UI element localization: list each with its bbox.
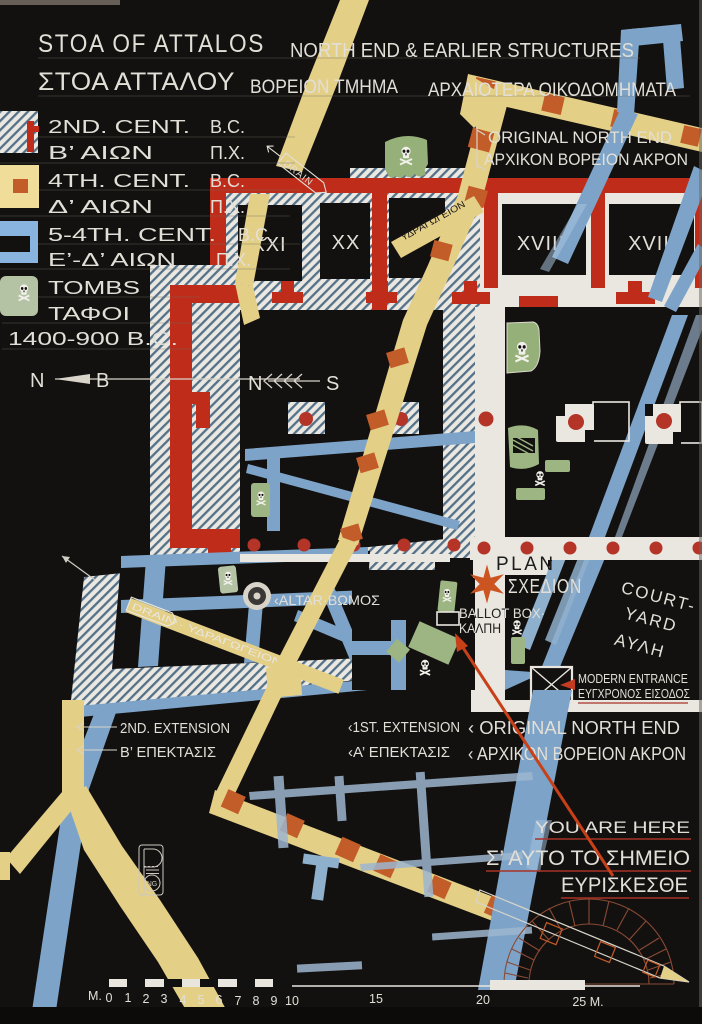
svg-text:ΒΟΡΕΙΟΝ ΤΜΗΜΑ: ΒΟΡΕΙΟΝ ΤΜΗΜΑ xyxy=(250,77,398,98)
svg-text:4TH. CENT.: 4TH. CENT. xyxy=(48,171,190,191)
svg-text:6: 6 xyxy=(216,993,223,1007)
svg-text:Π.Χ.: Π.Χ. xyxy=(210,143,245,163)
svg-text:M.: M. xyxy=(88,989,102,1003)
svg-text:10: 10 xyxy=(285,994,299,1008)
svg-text:25 M.: 25 M. xyxy=(572,995,603,1009)
svg-text:ΕΥΡΙΣΚΕΣΘΕ: ΕΥΡΙΣΚΕΣΘΕ xyxy=(561,874,688,897)
svg-text:ΤΑΦΟΙ: ΤΑΦΟΙ xyxy=(48,304,130,324)
svg-text:4: 4 xyxy=(180,993,187,1007)
svg-text:STOA OF ATTALOS: STOA OF ATTALOS xyxy=(38,30,265,58)
svg-text:XVII: XVII xyxy=(628,233,670,255)
svg-text:MODERN ENTRANCE: MODERN ENTRANCE xyxy=(578,672,688,686)
svg-text:PLAN: PLAN xyxy=(496,554,556,575)
svg-text:2ND. EXTENSION: 2ND. EXTENSION xyxy=(120,720,230,737)
svg-text:8: 8 xyxy=(253,994,260,1008)
svg-text:20: 20 xyxy=(476,993,490,1007)
svg-text:Δ’ ΑΙΩΝ: Δ’ ΑΙΩΝ xyxy=(48,197,153,217)
svg-text:ΑΡΧΑΙΟΤΕΡΑ ΟΙΚΟΔΟΜΗΜΑΤΑ: ΑΡΧΑΙΟΤΕΡΑ ΟΙΚΟΔΟΜΗΜΑΤΑ xyxy=(428,80,676,101)
svg-text:2: 2 xyxy=(143,992,150,1006)
svg-text:ΕΥΓΧΡΟΝΟΣ ΕΙΣΟΔΟΣ: ΕΥΓΧΡΟΝΟΣ ΕΙΣΟΔΟΣ xyxy=(578,687,690,701)
svg-text:S: S xyxy=(326,373,339,395)
svg-text:‹ ΑΡΧΙΚΟΝ ΒΟΡΕΙΟΝ ΑΚΡΟΝ: ‹ ΑΡΧΙΚΟΝ ΒΟΡΕΙΟΝ ΑΚΡΟΝ xyxy=(468,744,686,764)
svg-text:1: 1 xyxy=(125,991,132,1005)
svg-text:5-4TH. CENT.: 5-4TH. CENT. xyxy=(48,225,216,245)
svg-text:‹Α’ ΕΠΕΚΤΑΣΙΣ: ‹Α’ ΕΠΕΚΤΑΣΙΣ xyxy=(348,744,450,761)
svg-text:Π.Χ.: Π.Χ. xyxy=(216,250,251,270)
svg-text:YOU ARE HERE: YOU ARE HERE xyxy=(535,818,690,837)
svg-text:TOMBS: TOMBS xyxy=(48,278,140,298)
svg-text:NORTH END & EARLIER STRUCTURES: NORTH END & EARLIER STRUCTURES xyxy=(290,40,634,62)
svg-text:ORIGINAL NORTH END: ORIGINAL NORTH END xyxy=(488,129,672,147)
svg-text:‹ALTAR·ΒΩΜΟΣ: ‹ALTAR·ΒΩΜΟΣ xyxy=(274,592,380,608)
svg-text:B.C.: B.C. xyxy=(210,171,245,191)
svg-text:9: 9 xyxy=(271,994,278,1008)
svg-text:3: 3 xyxy=(161,992,168,1006)
svg-text:7: 7 xyxy=(235,994,242,1008)
svg-text:Β’ ΕΠΕΚΤΑΣΙΣ: Β’ ΕΠΕΚΤΑΣΙΣ xyxy=(120,744,216,761)
svg-text:ΣΧΕΔΙΟΝ: ΣΧΕΔΙΟΝ xyxy=(508,576,582,598)
svg-text:B.C.: B.C. xyxy=(238,225,273,245)
svg-text:ΣΤΟΑ ΑΤΤΑΛΟΥ: ΣΤΟΑ ΑΤΤΑΛΟΥ xyxy=(38,68,235,96)
svg-text:B.C.: B.C. xyxy=(210,117,245,137)
svg-text:2ND. CENT.: 2ND. CENT. xyxy=(48,117,190,137)
svg-text:N: N xyxy=(248,373,262,395)
svg-text:1400-900 B.C.: 1400-900 B.C. xyxy=(8,329,178,349)
svg-text:N: N xyxy=(30,370,44,392)
svg-text:Β’ ΑΙΩΝ: Β’ ΑΙΩΝ xyxy=(48,143,153,163)
svg-text:Ε’-Δ’ ΑΙΩΝ: Ε’-Δ’ ΑΙΩΝ xyxy=(48,250,176,270)
svg-text:0: 0 xyxy=(106,991,113,1005)
svg-text:NG: NG xyxy=(147,881,158,888)
svg-text:ΑΡΧΙΚΟΝ ΒΟΡΕΙΟΝ ΑΚΡΟΝ: ΑΡΧΙΚΟΝ ΒΟΡΕΙΟΝ ΑΚΡΟΝ xyxy=(484,151,688,169)
svg-text:Π.Χ.: Π.Χ. xyxy=(210,197,245,217)
svg-text:‹1ST. EXTENSION: ‹1ST. EXTENSION xyxy=(348,719,460,736)
svg-text:‹ ORIGINAL NORTH END: ‹ ORIGINAL NORTH END xyxy=(468,718,680,738)
svg-text:15: 15 xyxy=(369,992,383,1006)
svg-text:B: B xyxy=(96,370,109,392)
svg-text:XX: XX xyxy=(332,232,361,254)
svg-text:5: 5 xyxy=(198,993,205,1007)
svg-text:Σ’ ΑΥΤΟ ΤΟ ΣΗΜΕΙΟ: Σ’ ΑΥΤΟ ΤΟ ΣΗΜΕΙΟ xyxy=(486,847,690,870)
